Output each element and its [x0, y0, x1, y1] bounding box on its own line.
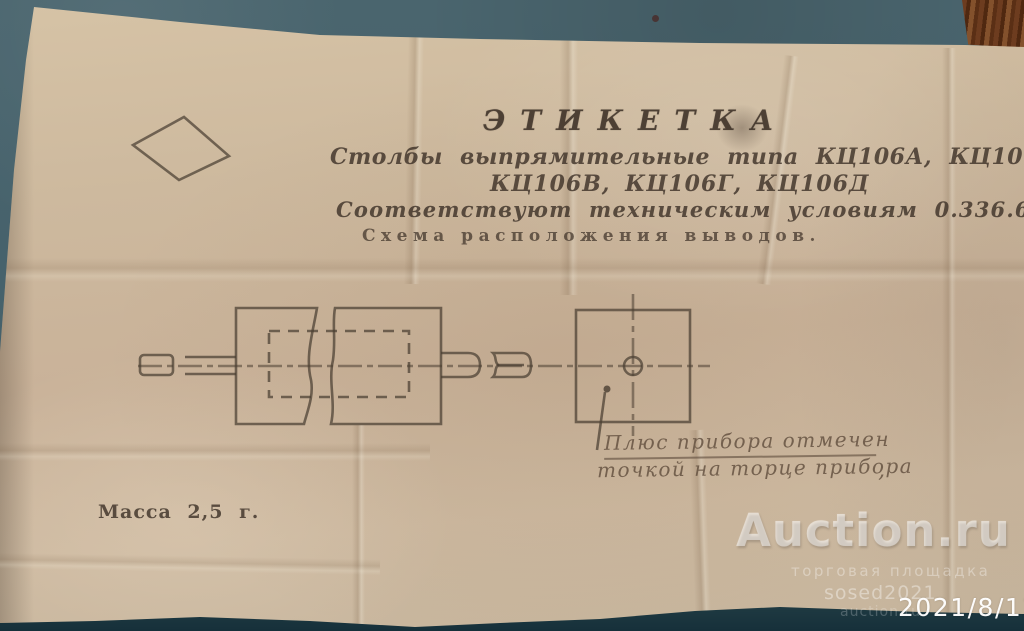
background-fleck: [652, 15, 659, 22]
plus-dot: [604, 386, 611, 393]
crease-line: [756, 55, 799, 285]
label-type-line-2: КЦ106В, КЦ106Г, КЦ106Д: [490, 171, 870, 197]
label-spec-line: Соответствуют техническим условиям 0.336…: [336, 197, 1024, 222]
auction-photo: ЭТИКЕТКА Столбы выпрямительные типа КЦ10…: [0, 0, 1024, 631]
crease-line: [0, 553, 380, 576]
end-view-square: [576, 310, 690, 422]
label-type-line-1: Столбы выпрямительные типа КЦ106А, КЦ106…: [330, 144, 1024, 170]
center-lead-circle: [624, 357, 642, 375]
paper-edge-shade: [0, 0, 34, 631]
wood-strip: [962, 0, 1024, 48]
crease-line: [352, 425, 365, 631]
label-mass-line: Масса 2,5 г.: [98, 501, 259, 523]
right-lead-segment: [441, 353, 480, 377]
handwritten-comma: ,: [878, 458, 887, 483]
watermark-tagline: торговая площадка: [791, 562, 990, 580]
label-scheme-line: Схема расположения выводов.: [362, 226, 821, 246]
crease-line: [0, 443, 430, 461]
left-lead-tip: [140, 355, 173, 375]
side-view-body-left: [236, 308, 317, 424]
rhombus-logo: [133, 117, 229, 180]
watermark-date: 2021/8/12: [898, 593, 1024, 622]
right-lead-tip: [493, 353, 531, 377]
label-title: ЭТИКЕТКА: [483, 104, 789, 137]
inner-dashed-outline: [269, 331, 409, 397]
side-view-body-right: [331, 308, 441, 424]
watermark-brand: Auction.ru: [736, 504, 1011, 557]
handwritten-note-line-2: точкой на торце прибора: [597, 454, 913, 482]
crease-line: [0, 258, 1024, 282]
